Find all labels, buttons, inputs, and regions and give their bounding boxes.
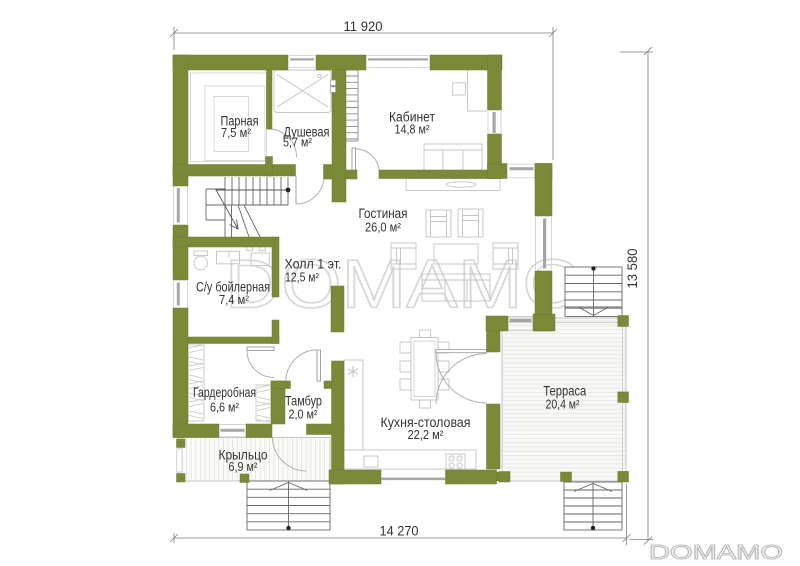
svg-text:7,5 м²: 7,5 м² bbox=[221, 125, 252, 140]
svg-text:DOMAMO: DOMAMO bbox=[649, 542, 783, 564]
svg-text:6,9 м²: 6,9 м² bbox=[229, 459, 259, 474]
svg-text:11 920: 11 920 bbox=[344, 19, 383, 34]
svg-text:20,4 м²: 20,4 м² bbox=[546, 397, 581, 412]
svg-text:14 270: 14 270 bbox=[380, 524, 419, 539]
svg-text:5,7 м²: 5,7 м² bbox=[283, 135, 313, 150]
svg-text:7,4 м²: 7,4 м² bbox=[219, 292, 250, 307]
svg-text:22,2 м²: 22,2 м² bbox=[408, 427, 445, 442]
svg-text:26,0 м²: 26,0 м² bbox=[365, 220, 402, 235]
svg-text:6,6 м²: 6,6 м² bbox=[210, 400, 240, 415]
svg-text:Гардеробная: Гардеробная bbox=[193, 385, 256, 400]
svg-text:2,0 м²: 2,0 м² bbox=[289, 407, 319, 422]
svg-text:13 580: 13 580 bbox=[625, 249, 640, 289]
svg-text:12,5 м²: 12,5 м² bbox=[285, 270, 320, 285]
svg-text:14,8 м²: 14,8 м² bbox=[395, 122, 431, 137]
